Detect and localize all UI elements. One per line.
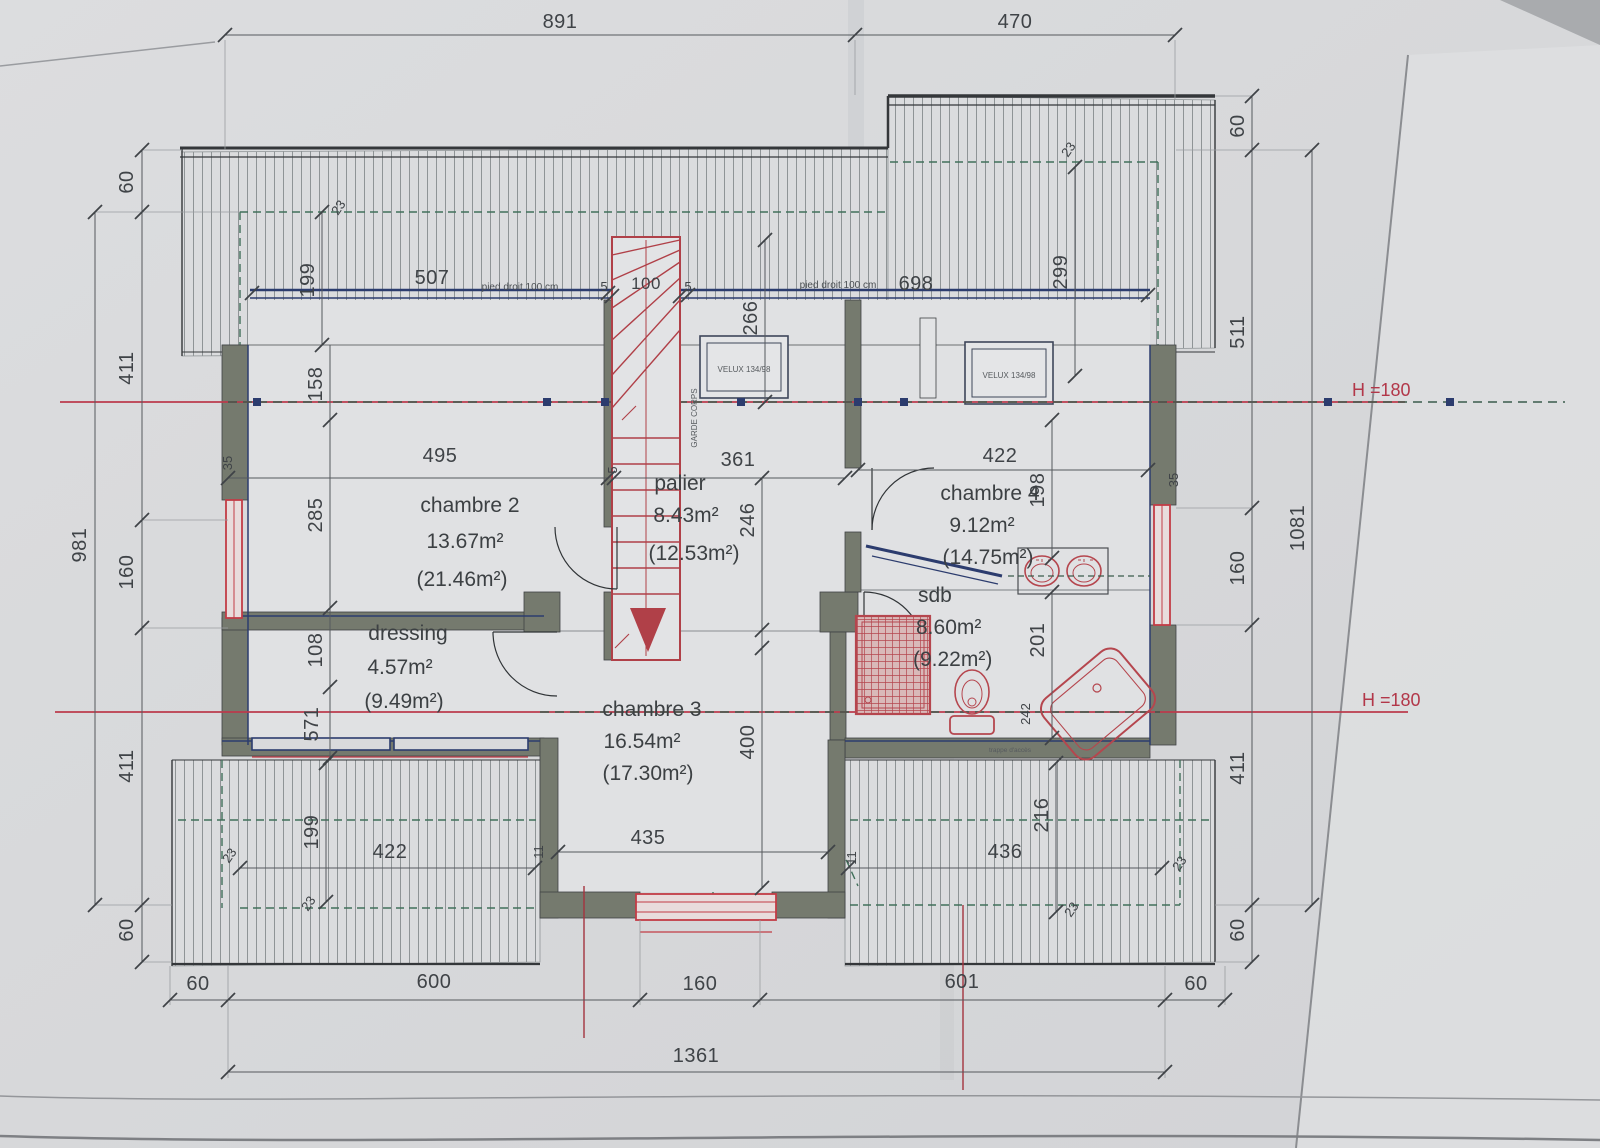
dim-299: 299 [1050,255,1072,290]
dim-470: 470 [998,11,1033,33]
dim-5a: 5 [600,279,607,294]
dim-199a: 199 [297,263,319,298]
dim-right-1081: 1081 [1287,505,1309,552]
dim-5b: 5 [684,279,691,294]
dim-285: 285 [305,498,327,533]
dim-right-60a: 60 [1227,114,1249,137]
dim-422-bottom: 422 [373,841,408,863]
room-palier-name: palier [654,472,705,495]
room-chambre2-area: 13.67m² [426,530,503,553]
room-dressing-name: dressing [368,622,447,645]
dim-361: 361 [721,449,756,471]
room-chambre4-area-total: (14.75m²) [942,546,1033,569]
staircase [612,237,680,660]
dim-891: 891 [543,11,578,33]
dim-108: 108 [305,633,327,668]
dim-right-160: 160 [1227,551,1249,586]
dim-left-60a: 60 [116,170,138,193]
dim-216: 216 [1031,798,1053,833]
dim-246: 246 [737,503,759,538]
dim-right-411: 411 [1227,751,1249,784]
dim-bottom-601: 601 [945,971,980,993]
floor-plan-drawing: VELUX 134/98 VELUX 134/98 H =180 H =180 … [0,0,1600,1148]
dim-495: 495 [423,445,458,467]
room-palier-area-total: (12.53m²) [648,542,739,565]
dim-436: 436 [988,841,1023,863]
dim-199b: 199 [301,815,323,850]
room-chambre2-area-total: (21.46m²) [416,568,507,591]
dim-bottom-600: 600 [417,971,452,993]
room-chambre4-area: 9.12m² [949,514,1014,537]
access-note: trappe d'accès [989,747,1032,754]
room-chambre4-name: chambre 4 [940,482,1040,505]
velux-label-right: VELUX 134/98 [983,371,1036,380]
dim-266: 266 [740,301,762,336]
dim-left-60b: 60 [116,918,138,941]
knee-note-right: pied droit 100 cm [800,280,877,291]
floor-plan-photo: VELUX 134/98 VELUX 134/98 H =180 H =180 … [0,0,1600,1148]
room-chambre3-area: 16.54m² [603,730,680,753]
room-sdb-name: sdb [918,584,952,607]
room-palier-area: 8.43m² [653,504,718,527]
velux-label-left: VELUX 134/98 [718,365,771,374]
dim-435: 435 [631,827,666,849]
dim-bottom-60b: 60 [1184,973,1207,995]
dim-422-top: 422 [983,445,1018,467]
guard-rail-label: GARDE CORPS [690,388,699,447]
dim-left-411a: 411 [116,351,138,384]
dim-bottom-160: 160 [683,973,718,995]
dim-5c: 5 [605,466,620,473]
height-label-2: H =180 [1362,690,1421,710]
dim-507: 507 [415,267,450,289]
height-label-1: H =180 [1352,380,1411,400]
room-chambre2-name: chambre 2 [420,494,519,517]
dim-201: 201 [1027,623,1049,658]
dim-11b: 11 [844,851,859,865]
dim-bottom-60a: 60 [186,973,209,995]
dim-bottom-1361: 1361 [673,1045,720,1067]
room-dressing-area: 4.57m² [367,656,432,679]
room-sdb-area-total: (9.22m²) [913,648,992,671]
dim-100: 100 [631,274,661,293]
dim-left-160: 160 [116,555,138,590]
dim-400: 400 [737,725,759,760]
dim-11a: 11 [531,845,546,859]
dim-left-411b: 411 [116,749,138,782]
dim-right-60b: 60 [1227,918,1249,941]
room-chambre3-name: chambre 3 [602,698,701,721]
room-dressing-area-total: (9.49m²) [364,690,443,713]
dim-698: 698 [899,273,934,295]
room-chambre3-area-total: (17.30m²) [602,762,693,785]
dim-35-left: 35 [220,456,235,470]
dim-left-981: 981 [69,528,91,563]
dim-242: 242 [1018,703,1033,725]
room-sdb-area: 8.60m² [916,616,981,639]
knee-note-left: pied droit 100 cm [482,282,559,293]
dim-35-right: 35 [1166,473,1181,487]
dim-571: 571 [301,707,323,742]
dim-right-511: 511 [1227,315,1249,348]
dim-158: 158 [305,367,327,402]
